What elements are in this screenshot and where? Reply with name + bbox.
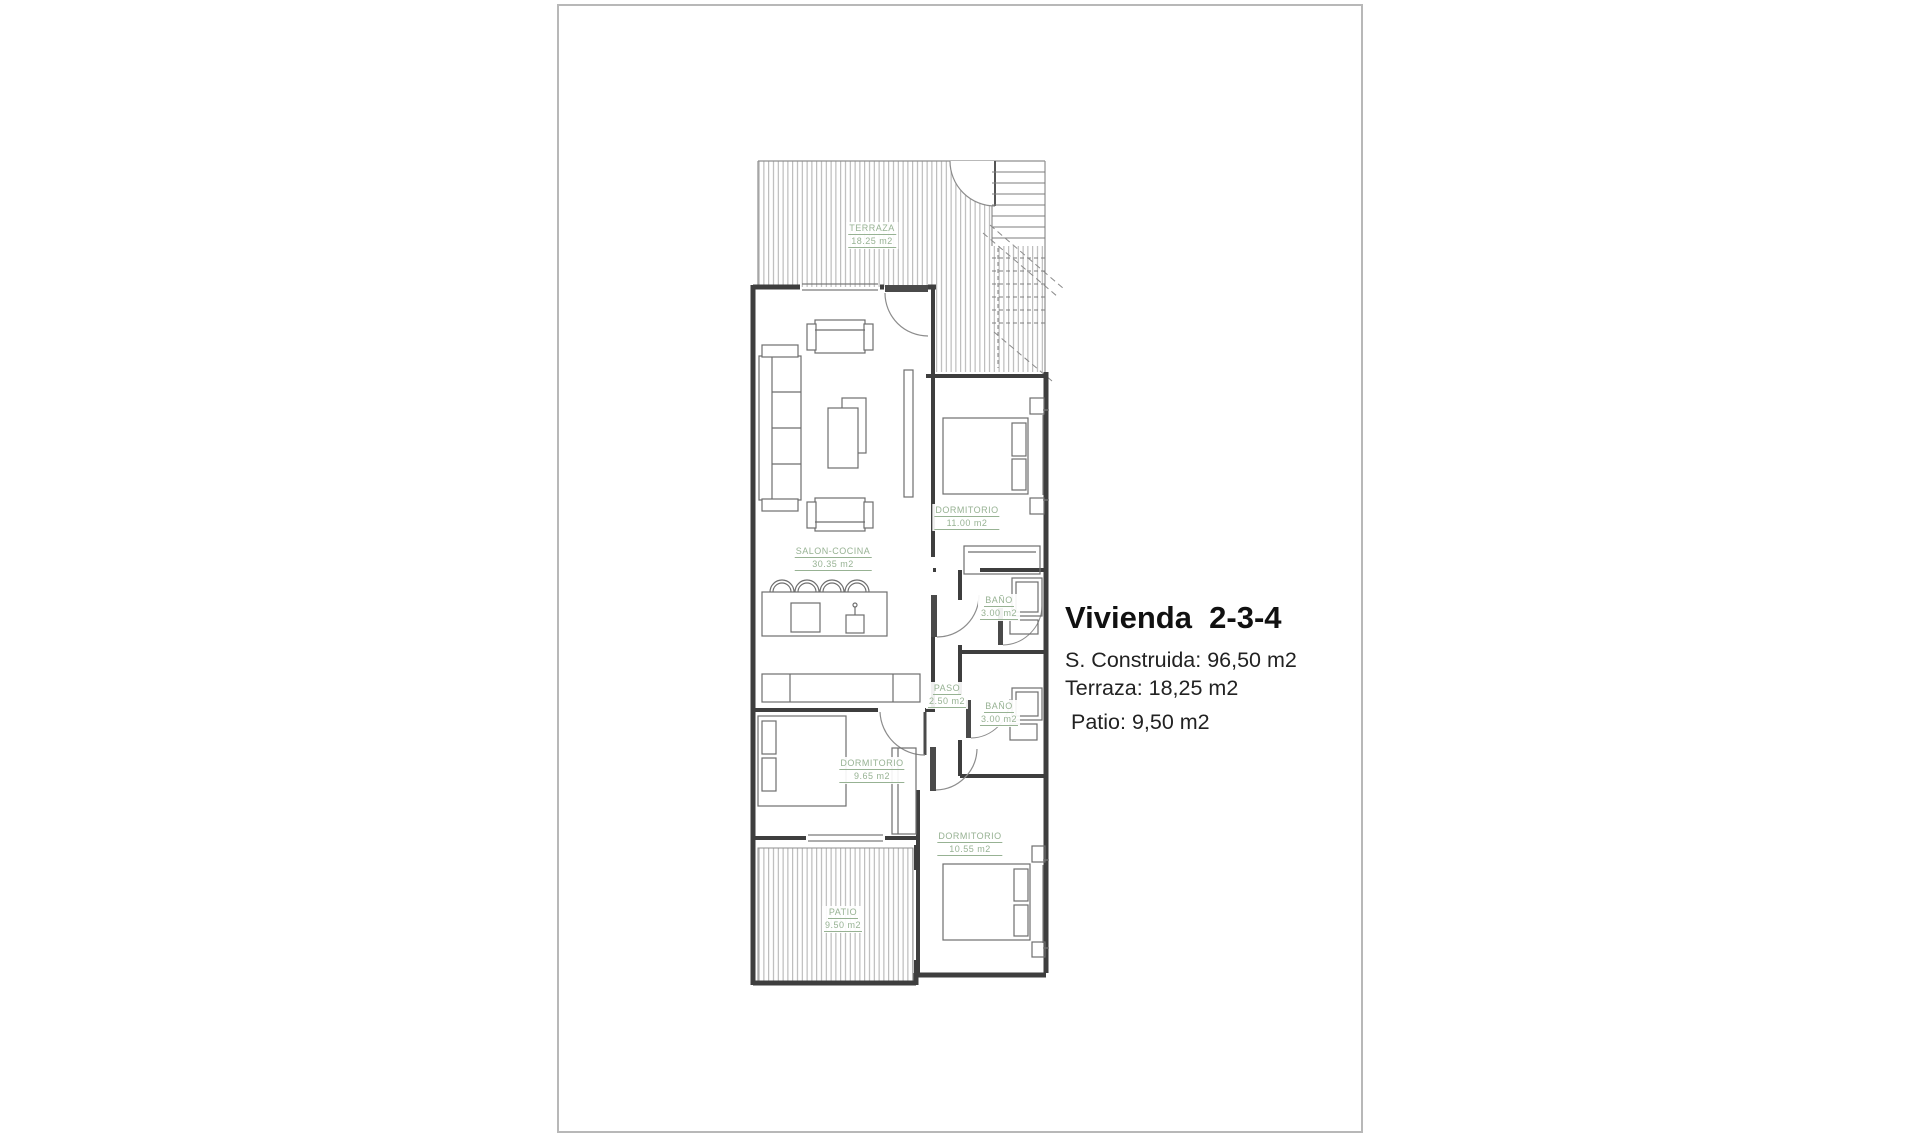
room-label-bano-2: BAÑO 3.00 m2	[978, 700, 1020, 727]
patio-area-text: Patio: 9,50 m2	[1065, 708, 1297, 736]
room-label-dormitorio-3: DORMITORIO 10.55 m2	[935, 830, 1004, 857]
terrace-area-text: Terraza: 18,25 m2	[1065, 674, 1297, 702]
room-label-paso: PASO 2.50 m2	[926, 682, 968, 709]
bedroom3-furniture	[943, 846, 1045, 957]
bedroom1-furniture	[943, 398, 1044, 574]
salon-furniture	[759, 320, 913, 531]
plan-info-block: Vivienda 2-3-4 S. Construida: 96,50 m2 T…	[1065, 600, 1297, 736]
room-label-dormitorio-1: DORMITORIO 11.00 m2	[932, 504, 1001, 531]
room-label-terraza: TERRAZA 18.25 m2	[846, 222, 898, 249]
room-label-dormitorio-2: DORMITORIO 9.65 m2	[837, 757, 906, 784]
built-area-text: S. Construida: 96,50 m2	[1065, 646, 1297, 674]
room-label-patio: PATIO 9.50 m2	[822, 906, 864, 933]
terrace-hatch	[758, 161, 1045, 372]
room-label-bano-1: BAÑO 3.00 m2	[978, 594, 1020, 621]
floor-plan-drawing	[0, 0, 1920, 1140]
plan-title: Vivienda 2-3-4	[1065, 600, 1297, 636]
kitchen-counter	[762, 674, 920, 702]
kitchen-island	[762, 580, 887, 636]
room-label-salon-cocina: SALON-COCINA 30.35 m2	[793, 545, 874, 572]
page-canvas: TERRAZA 18.25 m2 DORMITORIO 11.00 m2 SAL…	[0, 0, 1920, 1140]
